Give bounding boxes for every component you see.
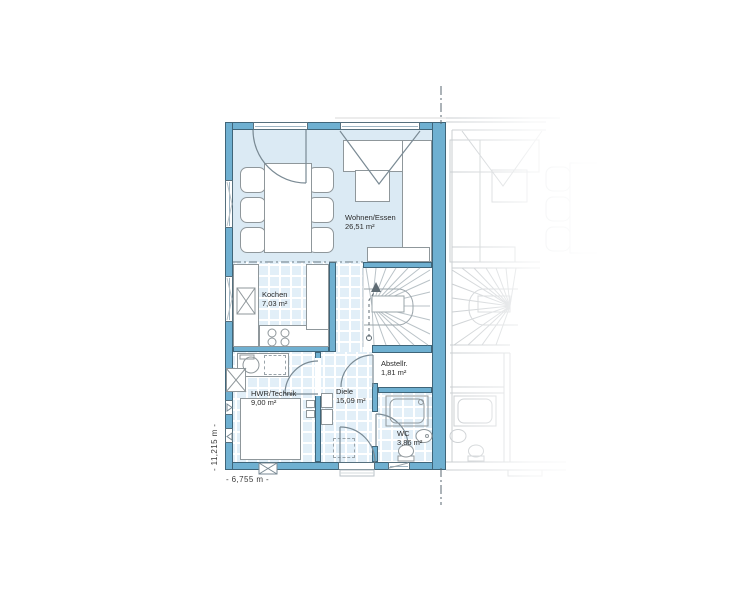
room-wc-floor	[378, 393, 433, 462]
hwr-door-opening	[315, 358, 321, 396]
vent-lower	[225, 428, 233, 443]
hwr-shelf	[306, 410, 315, 418]
room-label-kochen: Kochen 7,03 m²	[262, 290, 287, 308]
dryer-placeholder	[264, 355, 286, 375]
coffee-table	[355, 170, 390, 202]
door-mat	[333, 438, 355, 458]
staircase-floor	[363, 268, 433, 347]
room-area: 26,51 m²	[345, 222, 396, 231]
sideboard	[367, 247, 430, 262]
room-name: WC	[397, 429, 422, 438]
wall-abstell-wc	[378, 387, 432, 393]
wall-diele-wc-lower	[372, 446, 378, 462]
kitchen-window	[225, 276, 233, 322]
hwr-shelf	[306, 400, 315, 408]
room-area: 9,00 m²	[251, 398, 296, 407]
room-label-hwr: HWR/Technik 9,00 m²	[251, 389, 296, 407]
room-name: HWR/Technik	[251, 389, 296, 398]
room-area: 3,86 m²	[397, 438, 422, 447]
wall-abstell-top	[372, 345, 432, 353]
room-name: Kochen	[262, 290, 287, 299]
room-label-wc: WC 3,86 m²	[397, 429, 422, 447]
room-area: 1,81 m²	[381, 368, 408, 377]
wall-party	[432, 122, 446, 470]
room-area: 15,09 m²	[336, 396, 366, 405]
wall-bottom	[225, 462, 446, 470]
dining-chair	[240, 227, 266, 253]
kitchen-counter-peninsula	[306, 264, 329, 330]
room-label-wohnen: Wohnen/Essen 26,51 m²	[345, 213, 396, 231]
kitchen-counter-left	[233, 264, 259, 347]
dimension-width: - 6,755 m -	[226, 475, 269, 484]
wardrobe	[321, 393, 333, 408]
dimension-height: - 11,215 m -	[210, 424, 219, 471]
wc-window	[388, 462, 410, 470]
neighbor-unit-outline	[446, 118, 618, 476]
room-name: Diele	[336, 387, 366, 396]
living-window	[225, 180, 233, 228]
wardrobe	[321, 409, 333, 425]
hall-strip-floor	[336, 262, 363, 352]
floor-plan-canvas: Wohnen/Essen 26,51 m² Kochen 7,03 m² HWR…	[0, 0, 753, 600]
entrance-threshold	[340, 470, 374, 476]
dining-chair	[240, 197, 266, 223]
wall-kitchen-right	[329, 262, 336, 352]
entrance-door-opening	[338, 462, 375, 470]
dining-table	[264, 163, 312, 253]
terrace-door-opening	[253, 122, 308, 130]
neighbor-fade	[447, 70, 753, 530]
room-area: 7,03 m²	[262, 299, 287, 308]
french-window-opening	[340, 122, 420, 130]
vent-upper	[225, 400, 233, 415]
heat-pump-unit	[240, 398, 301, 460]
room-name: Abstellr.	[381, 359, 408, 368]
hwr-wall-unit	[226, 368, 246, 392]
dining-chair	[240, 167, 266, 193]
sofa-vertical	[402, 140, 432, 262]
room-label-diele: Diele 15,09 m²	[336, 387, 366, 405]
wall-stair-top	[363, 262, 432, 268]
room-name: Wohnen/Essen	[345, 213, 396, 222]
room-label-abstellraum: Abstellr. 1,81 m²	[381, 359, 408, 377]
